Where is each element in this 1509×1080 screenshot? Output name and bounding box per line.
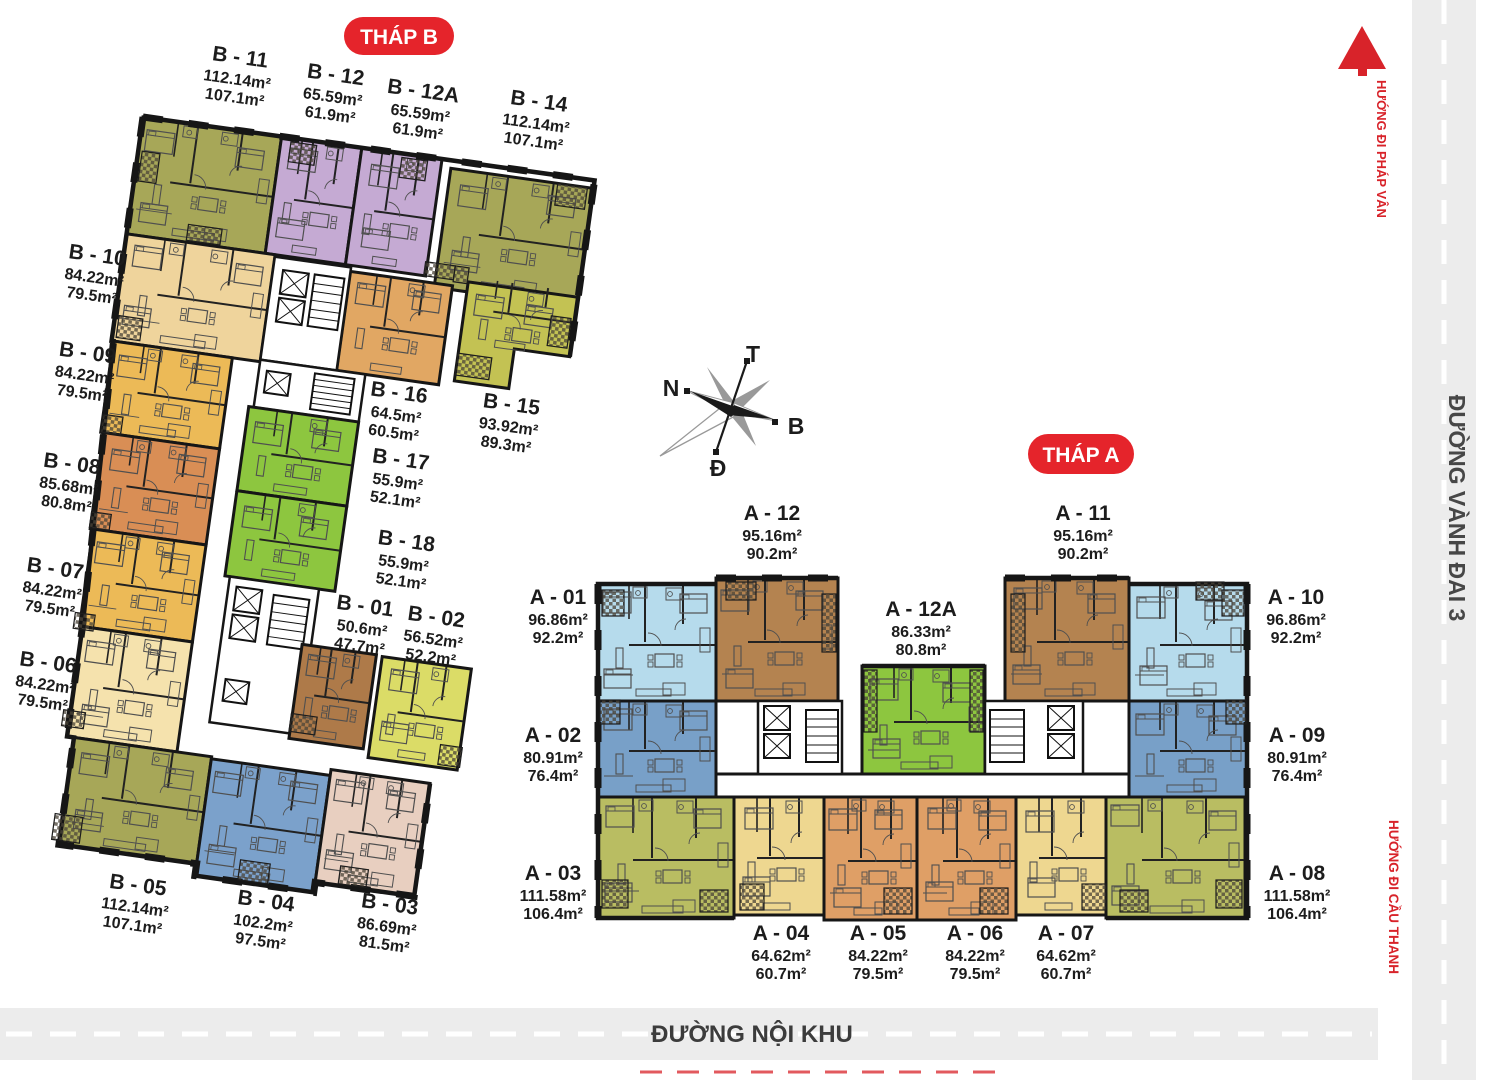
svg-text:92.2m²: 92.2m² <box>533 630 584 647</box>
svg-text:64.62m²: 64.62m² <box>1036 948 1096 965</box>
svg-text:A - 02: A - 02 <box>525 724 581 747</box>
svg-text:76.4m²: 76.4m² <box>528 768 579 785</box>
svg-text:ĐƯỜNG NỘI KHU: ĐƯỜNG NỘI KHU <box>651 1020 853 1048</box>
svg-text:THÁP A: THÁP A <box>1042 444 1119 467</box>
svg-text:A - 06: A - 06 <box>947 922 1003 945</box>
svg-text:HƯỚNG ĐI CẦU THANH: HƯỚNG ĐI CẦU THANH <box>1386 820 1401 974</box>
svg-text:A - 12A: A - 12A <box>885 598 957 621</box>
svg-text:111.58m²: 111.58m² <box>1264 888 1331 905</box>
svg-text:A - 05: A - 05 <box>850 922 907 945</box>
svg-text:96.86m²: 96.86m² <box>1266 612 1326 629</box>
svg-text:95.16m²: 95.16m² <box>742 528 802 545</box>
svg-text:THÁP B: THÁP B <box>360 26 438 49</box>
svg-text:ĐƯỜNG VÀNH ĐAI 3: ĐƯỜNG VÀNH ĐAI 3 <box>1444 395 1471 622</box>
svg-text:79.5m²: 79.5m² <box>950 966 1001 983</box>
svg-text:76.4m²: 76.4m² <box>1272 768 1323 785</box>
svg-text:A - 12: A - 12 <box>744 502 800 525</box>
svg-text:A - 04: A - 04 <box>753 922 810 945</box>
svg-text:106.4m²: 106.4m² <box>1267 906 1327 923</box>
svg-text:A - 08: A - 08 <box>1269 862 1326 885</box>
svg-text:111.58m²: 111.58m² <box>520 888 587 905</box>
svg-text:80.8m²: 80.8m² <box>896 642 947 659</box>
svg-text:B: B <box>788 413 805 439</box>
svg-text:95.16m²: 95.16m² <box>1053 528 1113 545</box>
svg-text:N: N <box>663 375 680 401</box>
svg-text:A - 07: A - 07 <box>1038 922 1094 945</box>
svg-text:90.2m²: 90.2m² <box>747 546 798 563</box>
svg-text:A - 11: A - 11 <box>1055 502 1111 525</box>
svg-text:80.91m²: 80.91m² <box>523 750 583 767</box>
svg-text:106.4m²: 106.4m² <box>523 906 583 923</box>
svg-text:84.22m²: 84.22m² <box>945 948 1005 965</box>
svg-text:60.7m²: 60.7m² <box>756 966 807 983</box>
svg-text:80.91m²: 80.91m² <box>1267 750 1327 767</box>
svg-text:T: T <box>746 341 760 367</box>
svg-text:A - 09: A - 09 <box>1269 724 1325 747</box>
svg-text:96.86m²: 96.86m² <box>528 612 588 629</box>
svg-text:HƯỚNG ĐI PHÁP VÂN: HƯỚNG ĐI PHÁP VÂN <box>1374 80 1389 218</box>
svg-text:A - 10: A - 10 <box>1268 586 1324 609</box>
svg-text:60.7m²: 60.7m² <box>1041 966 1092 983</box>
svg-text:84.22m²: 84.22m² <box>848 948 908 965</box>
svg-text:A - 03: A - 03 <box>525 862 581 885</box>
svg-text:79.5m²: 79.5m² <box>853 966 904 983</box>
svg-text:86.33m²: 86.33m² <box>891 624 951 641</box>
svg-text:A - 01: A - 01 <box>530 586 587 609</box>
svg-text:Đ: Đ <box>710 455 727 481</box>
svg-text:90.2m²: 90.2m² <box>1058 546 1109 563</box>
svg-text:64.62m²: 64.62m² <box>751 948 811 965</box>
svg-text:92.2m²: 92.2m² <box>1271 630 1322 647</box>
